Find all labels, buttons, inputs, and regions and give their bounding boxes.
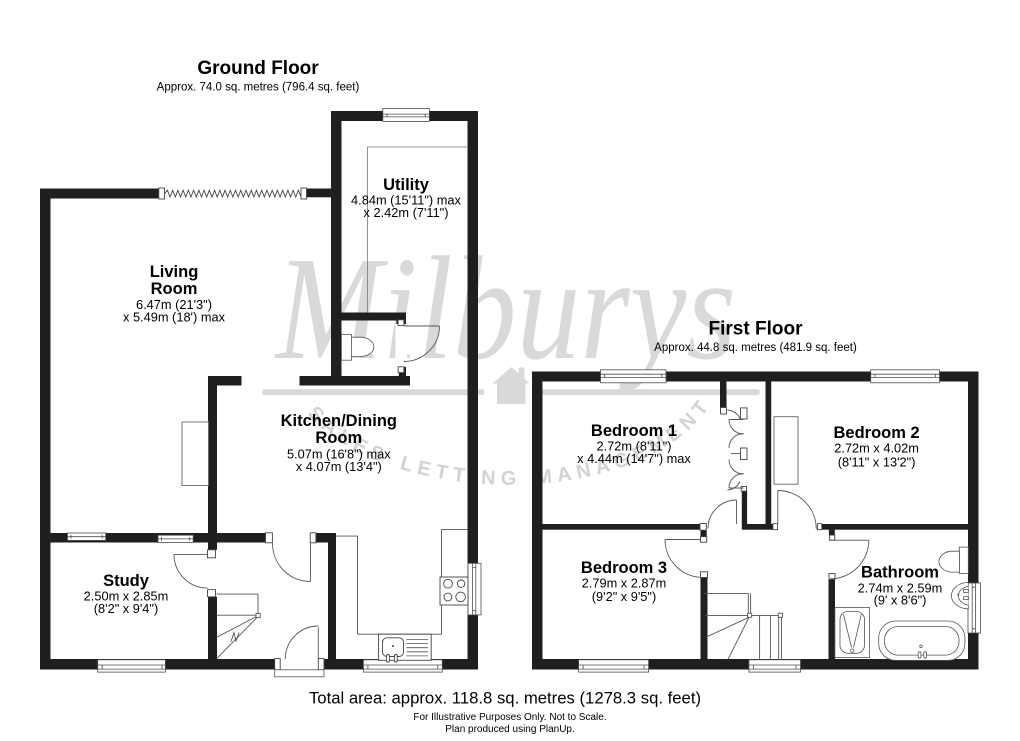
svg-text:For Illustrative Purposes Only: For Illustrative Purposes Only. Not to S…: [413, 712, 606, 723]
svg-text:(9'2" x 9'5"): (9'2" x 9'5"): [592, 589, 656, 604]
svg-text:x 4.07m (13'4"): x 4.07m (13'4"): [296, 459, 382, 474]
svg-text:Milburys: Milburys: [274, 227, 736, 391]
svg-text:Kitchen/Dining: Kitchen/Dining: [281, 412, 397, 430]
svg-text:(9' x 8'6"): (9' x 8'6"): [874, 593, 927, 608]
svg-text:Approx. 44.8 sq. metres (481.9: Approx. 44.8 sq. metres (481.9 sq. feet): [654, 342, 857, 354]
svg-text:Bedroom 1: Bedroom 1: [591, 422, 677, 440]
svg-text:Plan produced using PlanUp.: Plan produced using PlanUp.: [445, 724, 575, 735]
svg-text:Room: Room: [151, 280, 198, 298]
svg-text:Ground Floor: Ground Floor: [197, 58, 319, 79]
svg-text:Utility: Utility: [383, 176, 430, 194]
svg-text:Room: Room: [315, 429, 362, 447]
svg-text:Living: Living: [150, 263, 199, 281]
svg-text:Study: Study: [103, 572, 150, 590]
svg-text:x 2.42m (7'11"): x 2.42m (7'11"): [364, 205, 449, 220]
svg-text:(8'11" x 13'2"): (8'11" x 13'2"): [838, 455, 916, 470]
svg-text:Bedroom 3: Bedroom 3: [581, 559, 667, 577]
svg-text:x 5.49m (18') max: x 5.49m (18') max: [123, 310, 226, 325]
svg-text:x 4.44m (14'7") max: x 4.44m (14'7") max: [577, 451, 691, 466]
svg-text:Bathroom: Bathroom: [861, 564, 939, 582]
svg-text:Approx. 74.0 sq. metres (796.4: Approx. 74.0 sq. metres (796.4 sq. feet): [157, 82, 360, 94]
svg-text:Bedroom 2: Bedroom 2: [834, 424, 920, 442]
svg-text:2.72m x 4.02m: 2.72m x 4.02m: [834, 441, 919, 456]
svg-text:Total area: approx. 118.8 sq.: Total area: approx. 118.8 sq. metres (12…: [309, 689, 701, 708]
svg-text:(8'2" x 9'4"): (8'2" x 9'4"): [94, 601, 158, 616]
svg-text:First Floor: First Floor: [709, 319, 804, 340]
